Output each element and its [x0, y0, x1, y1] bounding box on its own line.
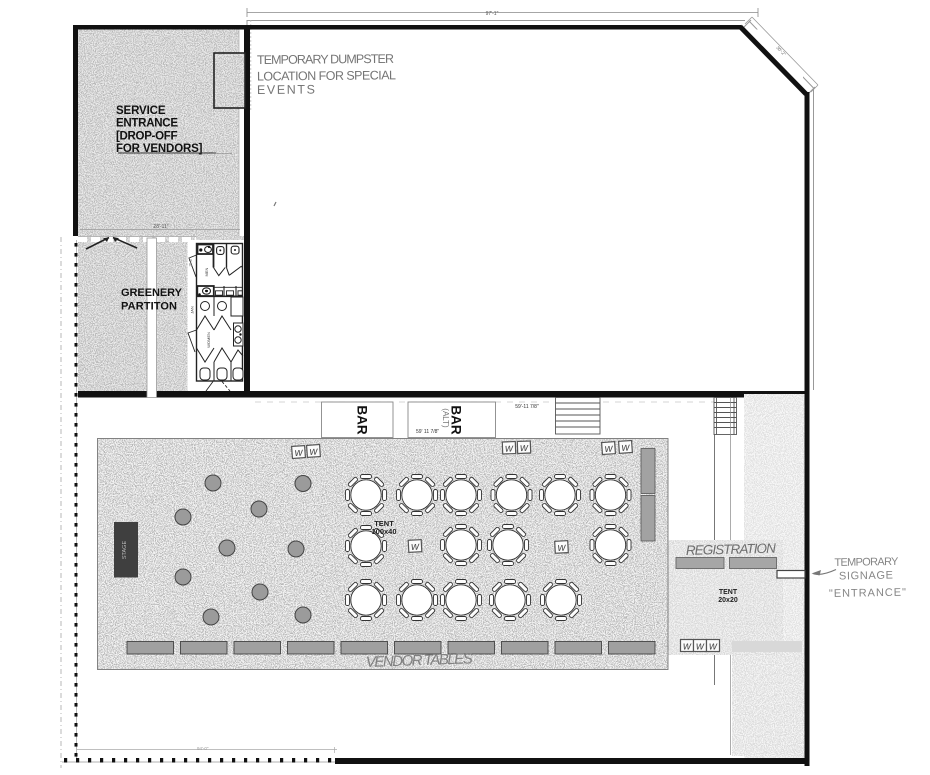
svg-text:28'-11": 28'-11" [153, 224, 168, 230]
svg-text:TEMPORARY DUMPSTER: TEMPORARY DUMPSTER [257, 52, 394, 67]
svg-text:GREENERY: GREENERY [121, 287, 183, 299]
svg-text:97'-1": 97'-1" [486, 11, 499, 17]
svg-text:JAN: JAN [190, 306, 195, 314]
svg-text:REGISTRATION: REGISTRATION [686, 541, 777, 558]
svg-text:STAGE: STAGE [122, 541, 128, 560]
svg-text:3'-6": 3'-6" [188, 257, 193, 266]
svg-text:BAR: BAR [354, 405, 369, 434]
svg-text:PARTITON: PARTITON [121, 301, 177, 313]
svg-text:(ALT): (ALT) [441, 408, 450, 428]
svg-text:TEMPORARY: TEMPORARY [834, 556, 899, 569]
svg-text:20x20: 20x20 [718, 597, 738, 604]
svg-text:MEN: MEN [204, 267, 209, 276]
svg-text:LOCATION FOR SPECIAL: LOCATION FOR SPECIAL [257, 68, 396, 83]
svg-text:SERVICE: SERVICE [116, 105, 166, 117]
svg-text:"ENTRANCE": "ENTRANCE" [829, 587, 906, 600]
svg-text:TENT: TENT [719, 589, 738, 596]
svg-text:WOMEN: WOMEN [206, 332, 211, 348]
svg-text:ENTRANCE: ENTRANCE [116, 118, 178, 130]
svg-text:59'-11 7/8": 59'-11 7/8" [515, 404, 539, 410]
svg-text:59' 11 7/8": 59' 11 7/8" [416, 429, 439, 435]
svg-text:SIGNAGE: SIGNAGE [839, 570, 893, 583]
svg-text:94'-0": 94'-0" [197, 746, 209, 751]
svg-text:[DROP-OFF: [DROP-OFF [116, 131, 178, 143]
svg-text:100x40: 100x40 [371, 527, 396, 536]
